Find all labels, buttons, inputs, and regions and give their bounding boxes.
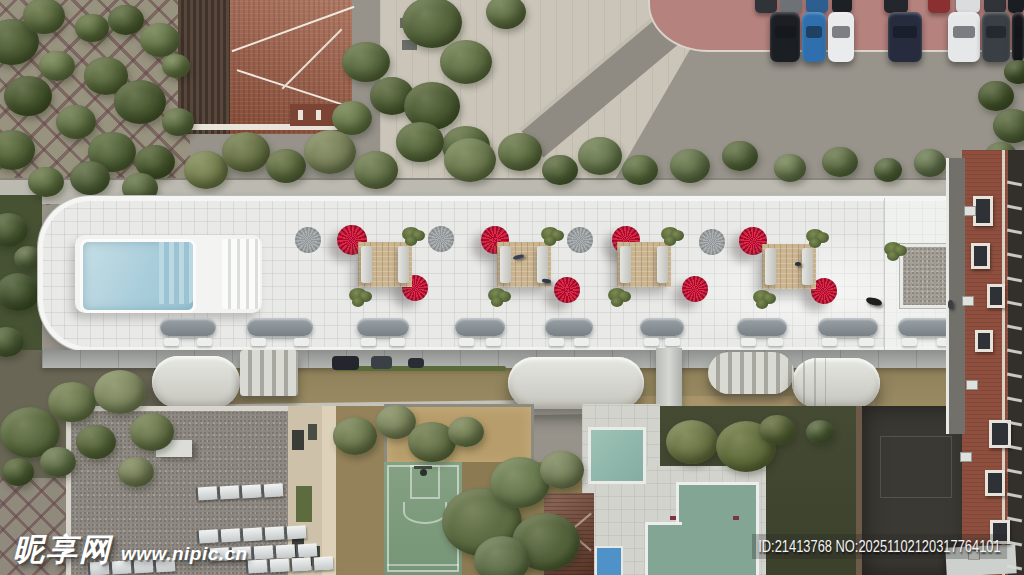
window (298, 110, 303, 120)
car-windshield (1014, 26, 1022, 38)
parked-car-shaded (332, 356, 359, 370)
drain-pipe (1002, 150, 1005, 575)
skylight-panel (268, 558, 290, 572)
window (292, 534, 304, 558)
tree (56, 105, 96, 139)
watermark-id: ID:21413768 NO:20251102120317764101 (752, 534, 1007, 559)
tree (0, 273, 40, 310)
tree (114, 80, 166, 124)
plaza-pavement (380, 0, 690, 192)
parked-car (802, 12, 826, 62)
parked-car (828, 12, 854, 62)
roof-ridge (546, 513, 592, 552)
tree (722, 141, 758, 172)
balcony-rail (1007, 516, 1022, 522)
parked-car (755, 0, 777, 13)
window (308, 424, 317, 440)
parked-car (780, 0, 802, 13)
ribbed-connector (240, 350, 298, 396)
dirt-patch-right (590, 396, 875, 414)
roof-ridge (282, 29, 343, 90)
car-windshield (775, 26, 796, 38)
court-arc (403, 502, 447, 524)
tree (48, 382, 96, 423)
window (334, 110, 339, 120)
balcony-rail (1007, 204, 1022, 210)
tree (622, 155, 658, 186)
window (989, 420, 1011, 448)
window (292, 430, 304, 450)
balcony-rail (1007, 396, 1022, 402)
beige-facade-edge (322, 406, 336, 575)
left-green-strip (0, 195, 42, 375)
court-marking (880, 436, 952, 498)
pool-platform (75, 235, 262, 313)
plaza-bench (402, 40, 417, 50)
building-facade-band (42, 350, 954, 368)
plaza-bench (400, 18, 415, 28)
tree (70, 161, 110, 195)
balcony-rail (1007, 372, 1022, 378)
pool-house-roof (544, 493, 594, 575)
ribbed-capsule (708, 352, 794, 394)
balcony-column (1008, 150, 1024, 575)
skylight-panel (262, 483, 284, 497)
tree (914, 149, 946, 176)
tree (4, 76, 52, 117)
skylight-panel (240, 484, 262, 498)
ground-sidewalk-path (140, 399, 620, 421)
parked-car-shaded (408, 358, 424, 368)
balcony-rail (1007, 540, 1022, 546)
swimming-pool (80, 239, 196, 313)
pool-deck (582, 404, 660, 575)
skylight-panel (274, 544, 296, 558)
support-pillar (656, 348, 682, 408)
tree (955, 157, 981, 179)
court-key (410, 465, 440, 499)
tree (542, 155, 578, 186)
balcony-rail (1007, 564, 1022, 570)
pool-lane-marker (733, 516, 739, 520)
balcony-rail (1007, 324, 1022, 330)
tree (442, 488, 522, 556)
tree (444, 138, 496, 182)
tree (448, 417, 484, 448)
tree (354, 151, 398, 188)
tree (806, 420, 834, 444)
tree (578, 137, 622, 174)
basketball-hoop (420, 469, 427, 476)
basketball-court (384, 462, 462, 575)
car-windshield (986, 26, 1006, 38)
window (316, 110, 321, 120)
backboard (414, 466, 432, 469)
skylight-panel (196, 486, 218, 500)
tree (1004, 60, 1024, 84)
tree (376, 405, 416, 439)
dirt-corridor (336, 406, 387, 575)
tree (333, 417, 377, 454)
parked-car (956, 0, 980, 13)
window (310, 546, 320, 566)
tree (184, 151, 228, 188)
parked-car-shaded (371, 356, 392, 369)
parked-car (1012, 12, 1024, 62)
tree (408, 422, 456, 463)
slatted-deck (222, 239, 260, 309)
tree (162, 54, 190, 78)
park-paving (0, 0, 190, 205)
roof-ridge (546, 513, 592, 552)
tree (266, 149, 306, 183)
roof-ridge (232, 6, 355, 52)
tree (670, 149, 710, 183)
tree (75, 14, 109, 43)
ac-unit (960, 452, 972, 462)
tree (404, 82, 460, 130)
sand-patch (384, 404, 534, 468)
roof-gutter (178, 124, 352, 130)
tree (440, 40, 492, 84)
diagonal-path (522, 0, 724, 158)
window (973, 196, 993, 226)
window (975, 330, 993, 352)
car-windshield (893, 26, 917, 38)
tree (76, 425, 116, 459)
tree (94, 370, 146, 414)
gravel-equipment-pad (900, 244, 958, 308)
balcony-rail (1007, 348, 1022, 354)
tree (978, 81, 1014, 112)
capsule-rings (792, 358, 826, 408)
tree (0, 327, 24, 358)
beige-facade (288, 406, 322, 575)
tile-roof-building (178, 0, 352, 134)
window (987, 284, 1005, 308)
tree (23, 0, 65, 34)
parked-car (888, 12, 922, 62)
tree (28, 167, 64, 198)
skylight-panel (263, 526, 285, 540)
large-green-pool-lower (645, 522, 682, 575)
kiddie-pool (595, 546, 623, 575)
tree (342, 42, 390, 83)
balcony-rail (1007, 276, 1022, 282)
tree (332, 101, 372, 135)
skylight-panel (252, 545, 274, 559)
tree (162, 108, 194, 135)
large-green-pool-upper (676, 482, 759, 575)
ground-dirt-strip (42, 364, 962, 414)
tree (118, 457, 154, 488)
tree (759, 415, 795, 446)
hedge-line (336, 366, 506, 371)
balcony-rail (1007, 492, 1022, 498)
tree (39, 51, 75, 82)
skylight-panel (312, 556, 334, 570)
car-windshield (953, 26, 975, 38)
window (985, 470, 1005, 496)
skylight-panel (296, 543, 318, 557)
parked-car (948, 12, 980, 62)
rooftop (38, 196, 958, 352)
tree (498, 133, 542, 170)
ac-unit (966, 380, 978, 390)
roof-utility-block (156, 440, 192, 457)
skylight-panel (218, 485, 240, 499)
balcony-rail (1007, 300, 1022, 306)
tree (402, 0, 462, 48)
parked-car (928, 0, 950, 13)
tree (88, 132, 136, 173)
skylight-panel (246, 559, 268, 573)
car-windshield (832, 26, 850, 38)
tree (84, 57, 128, 94)
balcony-rail (1007, 252, 1022, 258)
tree (874, 158, 902, 182)
parked-car (1008, 0, 1024, 13)
pink-parking-pavement (648, 0, 1024, 52)
parked-car (982, 12, 1010, 62)
balcony-rail (1007, 468, 1022, 474)
pool-lane-marker (670, 516, 676, 520)
capsule-balcony (792, 358, 880, 408)
tree (0, 19, 39, 65)
brick-building (962, 150, 1024, 575)
court-outline (387, 465, 459, 572)
tree (135, 145, 175, 179)
parked-car (806, 0, 828, 13)
tree (486, 0, 526, 29)
capsule-balcony (508, 357, 644, 409)
car-windshield (806, 26, 823, 38)
tree (0, 407, 60, 458)
watermark-site-name: 昵享网 (13, 529, 112, 571)
balcony-rail (1007, 420, 1022, 426)
watermark-site-url: www.nipic.cn (121, 543, 248, 565)
tree (40, 447, 76, 478)
parked-car (884, 0, 908, 13)
dirt-under-trees (462, 462, 584, 575)
parked-car (984, 0, 1006, 13)
asphalt-road (600, 0, 1024, 205)
roof-slat-section (178, 0, 230, 134)
tree (985, 142, 1017, 169)
aerial-photo: 昵享网 www.nipic.cn ID:21413768 NO:20251102… (0, 0, 1024, 575)
tree (370, 77, 414, 114)
window (971, 243, 990, 269)
tree (512, 513, 580, 571)
tree (993, 109, 1024, 143)
tree (490, 457, 550, 508)
tree (822, 147, 858, 178)
balcony-rail (1007, 228, 1022, 234)
pool-deck (644, 466, 766, 575)
tree (396, 122, 444, 163)
court-line (387, 564, 459, 566)
tree (304, 130, 356, 174)
pool-steps (159, 242, 193, 304)
tree (222, 132, 270, 173)
tree (0, 213, 28, 247)
ac-unit (964, 206, 976, 216)
balcony-planting (296, 486, 312, 522)
tree (442, 126, 490, 167)
roof-ridge (237, 69, 354, 109)
capsule-balcony (152, 356, 240, 408)
tree (0, 130, 35, 169)
tree (666, 420, 718, 464)
parked-car (770, 12, 800, 62)
building-facade (290, 104, 352, 126)
tree (716, 421, 776, 472)
parked-car (832, 0, 852, 13)
watermark: 昵享网 www.nipic.cn (13, 529, 248, 571)
tree (540, 451, 584, 488)
pool-join-patch (676, 526, 686, 575)
tree (140, 23, 180, 57)
tree (108, 5, 144, 36)
balcony-rail (1007, 180, 1022, 186)
tree (2, 458, 34, 485)
skylight-panel (290, 557, 312, 571)
tree (774, 154, 806, 181)
tree (130, 413, 174, 450)
small-teal-pool (588, 427, 646, 484)
tree (474, 536, 530, 575)
balcony-rail (1007, 444, 1022, 450)
skylight-panel (285, 525, 307, 539)
